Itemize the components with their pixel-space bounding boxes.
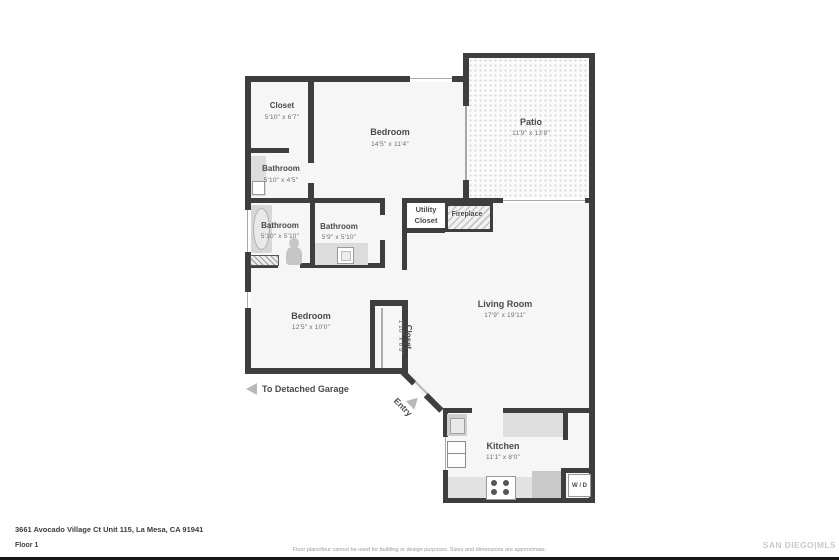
wall: [308, 183, 314, 203]
room-label-closet-top: Closet: [252, 101, 312, 110]
wall: [380, 198, 385, 215]
room-dims-bedroom-top: 14'5" x 11'4": [350, 141, 430, 148]
burner: [491, 489, 497, 495]
burner: [491, 480, 497, 486]
wall: [561, 468, 566, 503]
floorplan-page: { "rooms": { "closet_top": {"name": "Clo…: [0, 0, 839, 560]
wall: [463, 53, 469, 106]
room-label-patio: Patio: [491, 117, 571, 127]
wall: [589, 53, 595, 503]
wall: [380, 240, 385, 268]
footer-address: 3661 Avocado Village Ct Unit 115, La Mes…: [15, 525, 203, 534]
room-label-bedroom-top: Bedroom: [350, 127, 430, 137]
room-label-kitchen: Kitchen: [463, 441, 543, 451]
toilet-seat: [341, 251, 351, 261]
washer-dryer-label: W / D: [572, 483, 587, 489]
room-dims-living: 17'9" x 19'11": [455, 312, 555, 319]
garage-label: To Detached Garage: [262, 384, 349, 394]
room-label-living: Living Room: [455, 299, 555, 309]
room-label-bedroom-bottom: Bedroom: [271, 311, 351, 321]
sliding-door: [465, 106, 467, 180]
room-dims-bathroom-right: 5'9" x 5'10": [304, 234, 374, 241]
room-label-bathroom-right: Bathroom: [304, 222, 374, 231]
kitchen-sink-icon: [450, 418, 465, 434]
room-dims-kitchen: 11'1" x 8'0": [463, 454, 543, 461]
stove-icon: [486, 476, 516, 500]
room-label-bathroom-top: Bathroom: [246, 164, 316, 173]
sliding-door: [503, 198, 588, 203]
room-dims-closet-top: 5'10" x 6'7": [247, 114, 317, 121]
mls-logo: SAN DIEGO|MLS: [700, 540, 836, 550]
garage-arrow-icon: [246, 383, 257, 395]
floor-plan: W / D Closet 5'10" x 6'7" Bedroom 14'5" …: [0, 0, 839, 560]
wall: [443, 498, 595, 503]
bath-rug: [250, 255, 279, 266]
toilet-icon: [337, 247, 354, 264]
wall: [563, 408, 568, 440]
washer-dryer-box: W / D: [568, 474, 591, 497]
window: [410, 76, 452, 82]
dishwasher: [532, 471, 561, 498]
wall: [402, 228, 445, 233]
room-label-closet-bottom: Closet 1'10" x 6'9": [373, 301, 413, 373]
toilet-icon: [286, 247, 302, 265]
closet-bottom-name: Closet: [404, 301, 413, 373]
room-dims-bathroom-top: 5'10" x 4'5": [246, 177, 316, 184]
wall: [561, 468, 595, 473]
room-label-utility-closet: Utility Closet: [406, 204, 446, 226]
room-dims-bedroom-bottom: 12'5" x 10'0": [271, 324, 351, 331]
closet-bottom-dims: 1'10" x 6'9": [396, 301, 403, 373]
wall: [585, 198, 595, 203]
patio-area: [463, 53, 589, 203]
kitchen-counter: [503, 413, 563, 437]
room-dims-patio: 11'9" x 13'8": [491, 130, 571, 137]
wall: [245, 148, 289, 153]
burner: [503, 489, 509, 495]
burner: [503, 480, 509, 486]
window: [245, 292, 251, 308]
wall: [245, 198, 385, 203]
wall: [463, 53, 595, 58]
room-label-fireplace: Fireplace: [443, 211, 491, 219]
